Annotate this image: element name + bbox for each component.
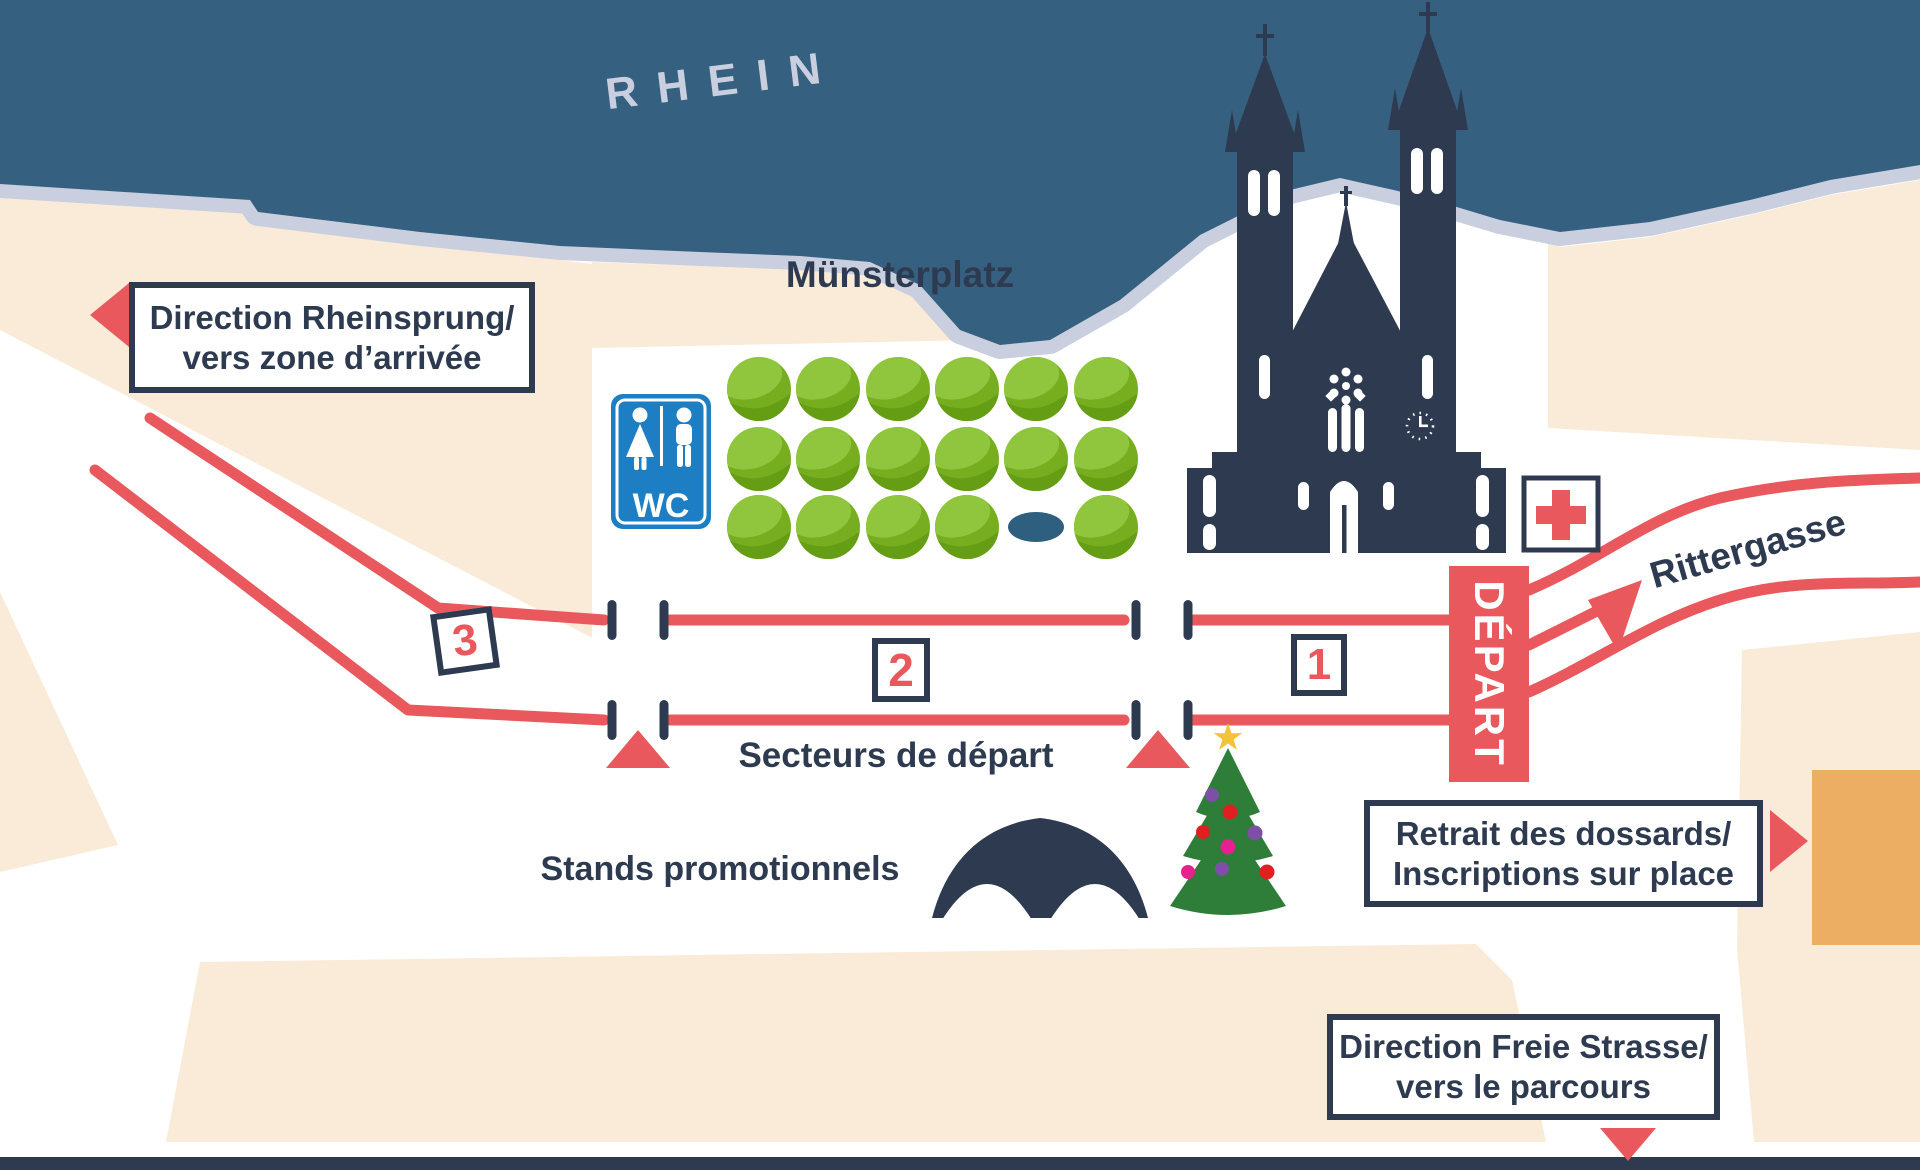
sign-line: Direction Freie Strasse/ [1339, 1027, 1708, 1067]
christmas-tree-icon [1170, 723, 1286, 915]
wc-label: WC [633, 487, 690, 525]
event-map: WC [0, 0, 1920, 1170]
sign-direction-freie-strasse: Direction Freie Strasse/ vers le parcour… [1327, 1014, 1720, 1120]
sign-direction-rheinsprung: Direction Rheinsprung/ vers zone d’arriv… [129, 282, 535, 393]
sector-1-box: 1 [1291, 634, 1347, 696]
promo-stands-label: Stands promotionnels [520, 850, 920, 889]
sign-retrait-dossards: Retrait des dossards/ Inscriptions sur p… [1364, 800, 1763, 907]
wc-icon: WC [611, 394, 711, 529]
first-aid-icon [1524, 478, 1598, 550]
muensterplatz-label: Münsterplatz [695, 254, 1105, 297]
land-left-wedge [0, 592, 118, 872]
sector-3-number: 3 [449, 615, 480, 668]
sign-line: Inscriptions sur place [1393, 854, 1734, 894]
sector-2-box: 2 [872, 638, 930, 702]
sector-1-number: 1 [1307, 640, 1331, 690]
sector-3-box: 3 [430, 606, 500, 676]
start-sectors-label: Secteurs de départ [656, 736, 1136, 776]
down-arrow-icon [1600, 1128, 1656, 1161]
sector-2-number: 2 [888, 643, 914, 697]
building-block-orange [1812, 770, 1920, 945]
sign-line: Direction Rheinsprung/ [150, 298, 515, 338]
map-graphics: WC [0, 0, 1920, 1170]
depart-banner: DÉPART [1449, 566, 1529, 782]
sign-line: vers le parcours [1396, 1067, 1651, 1107]
depart-banner-label: DÉPART [1465, 580, 1513, 768]
left-arrow-icon [90, 283, 129, 347]
church-door-mullion [1342, 505, 1347, 553]
tent-icon [932, 818, 1148, 920]
right-arrow-icon [1770, 810, 1808, 872]
sign-line: vers zone d’arrivée [183, 338, 482, 378]
pond-icon [1008, 512, 1064, 542]
sign-line: Retrait des dossards/ [1396, 814, 1732, 854]
